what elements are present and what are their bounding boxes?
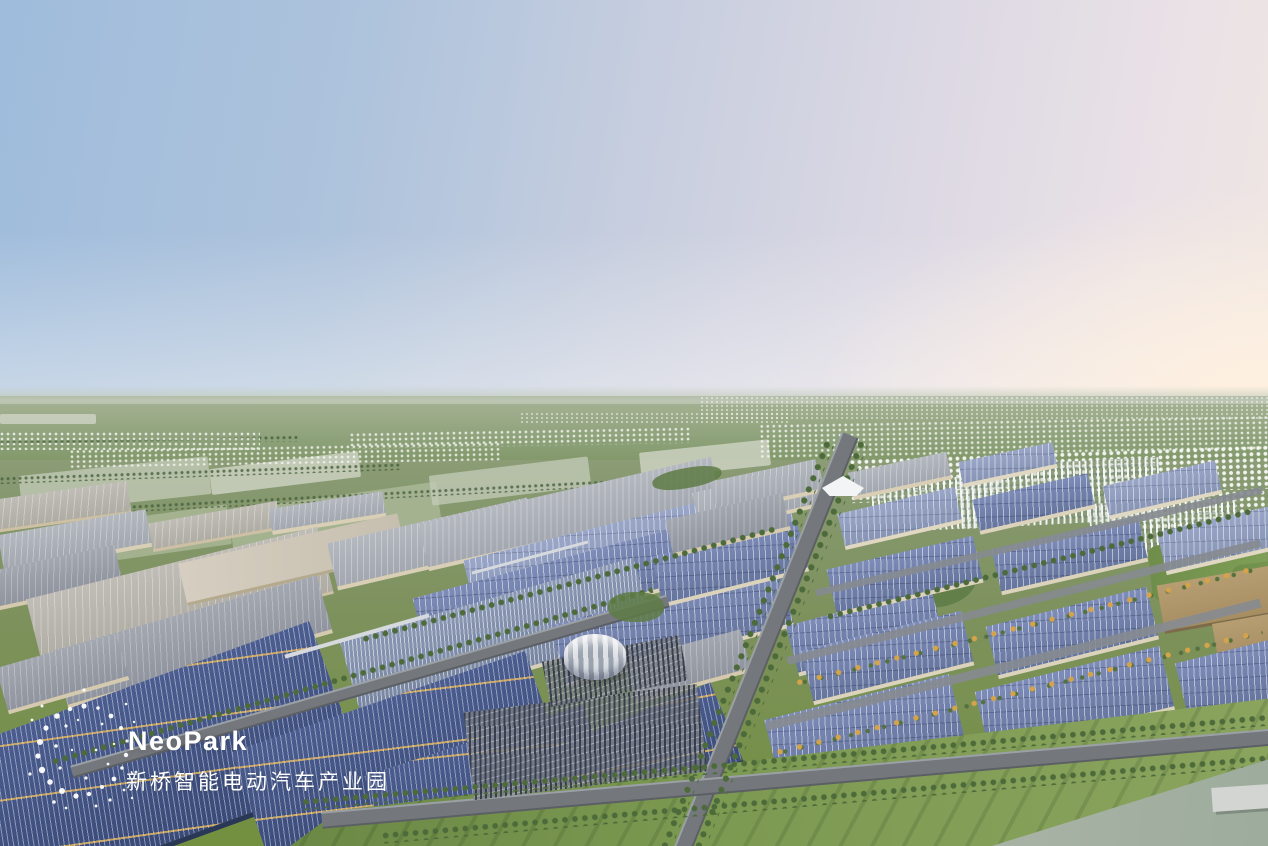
brand-subtitle-chinese: 新桥智能电动汽车产业园 [126, 766, 390, 796]
cylinder-tank [564, 634, 626, 680]
aerial-render: NeoPark 新桥智能电动汽车产业园 [0, 0, 1268, 846]
brand-name: NeoPark [128, 728, 248, 755]
neopark-watermark: NeoPark 新桥智能电动汽车产业园 [26, 686, 406, 836]
slab [1211, 784, 1268, 812]
hedge [608, 592, 664, 622]
field-c [0, 414, 96, 424]
